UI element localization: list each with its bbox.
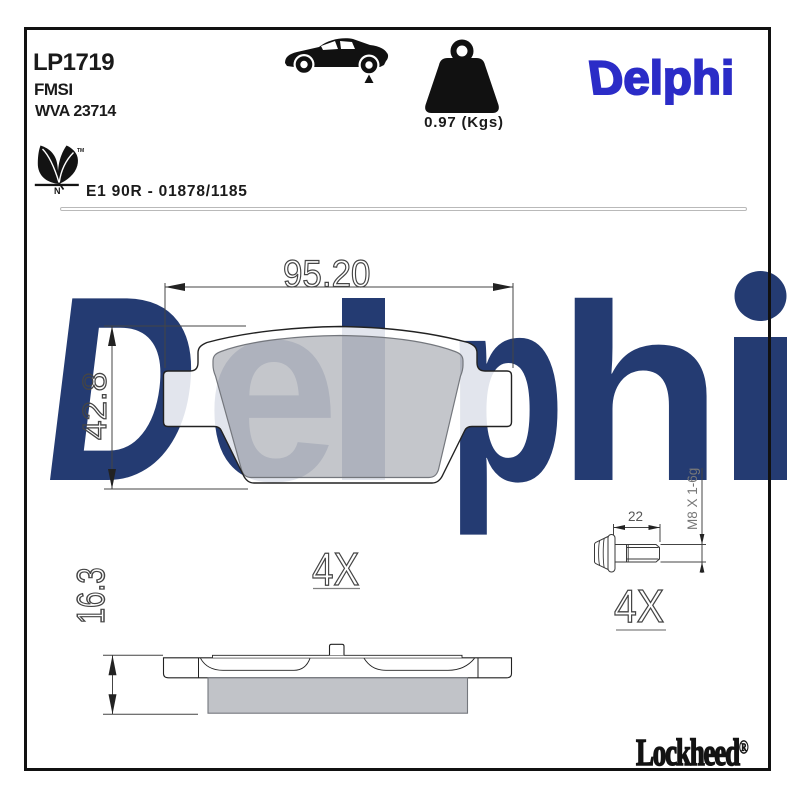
svg-text:N: N (54, 186, 61, 196)
svg-text:TM: TM (77, 148, 84, 154)
